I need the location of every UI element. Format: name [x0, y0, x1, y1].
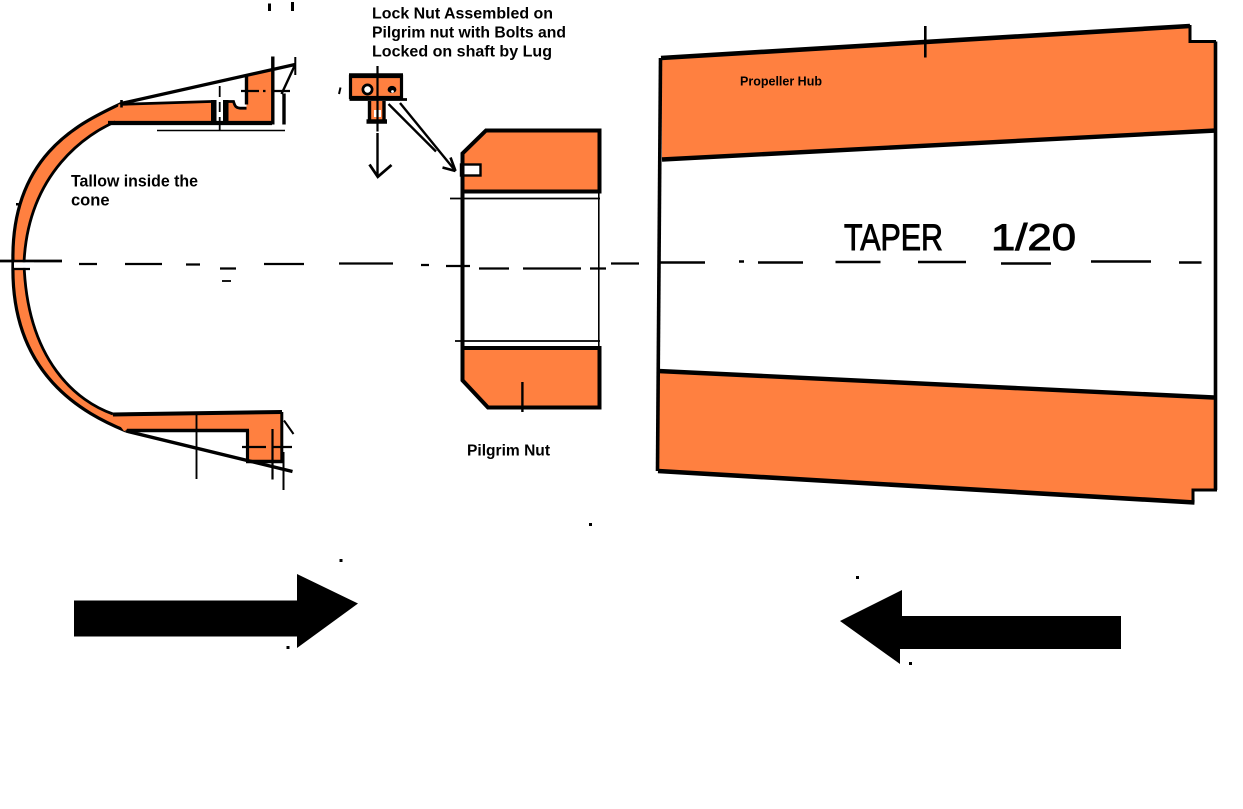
- svg-text:Propeller Hub: Propeller Hub: [740, 75, 822, 89]
- svg-text:cone: cone: [71, 192, 110, 210]
- svg-text:Tallow inside the: Tallow inside the: [71, 173, 198, 191]
- svg-text:Pilgrim nut with Bolts and: Pilgrim nut with Bolts and: [372, 25, 566, 42]
- svg-text:Locked on shaft by Lug: Locked on shaft by Lug: [372, 44, 552, 61]
- svg-text:TAPER: TAPER: [844, 217, 943, 258]
- svg-text:1/20: 1/20: [991, 217, 1076, 258]
- svg-text:Lock Nut Assembled on: Lock Nut Assembled on: [372, 6, 553, 23]
- svg-text:Pilgrim Nut: Pilgrim Nut: [467, 443, 550, 460]
